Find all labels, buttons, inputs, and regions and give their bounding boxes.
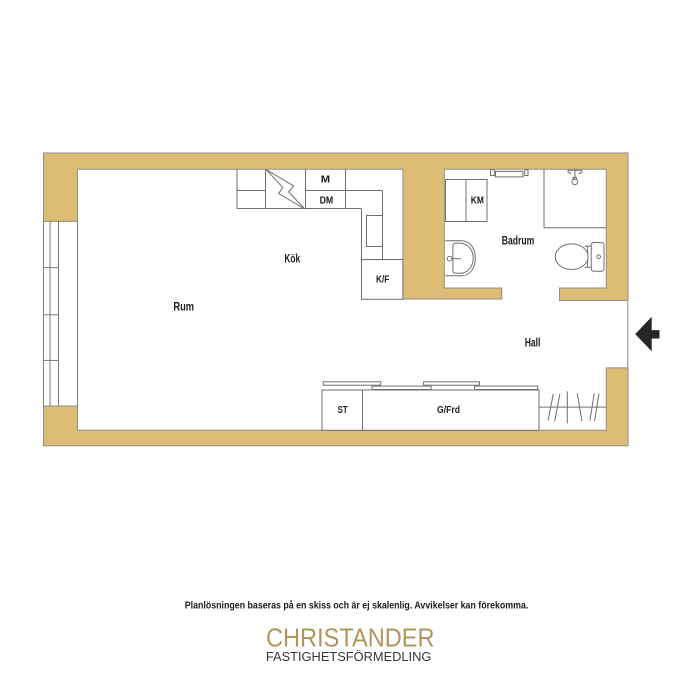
svg-text:Kök: Kök [284,252,300,266]
svg-text:K/F: K/F [376,273,390,285]
svg-text:Rum: Rum [173,299,194,313]
svg-text:Hall: Hall [525,336,541,350]
svg-text:M: M [321,174,331,186]
svg-text:G/Frd: G/Frd [437,404,460,416]
svg-text:Planlösningen baseras på en sk: Planlösningen baseras på en skiss och är… [185,601,529,612]
svg-text:DM: DM [320,194,334,206]
svg-text:FASTIGHETSFÖRMEDLING: FASTIGHETSFÖRMEDLING [266,649,432,664]
svg-text:ST: ST [338,404,348,416]
svg-text:Badrum: Badrum [502,233,534,247]
svg-text:CHRISTANDER: CHRISTANDER [266,624,435,652]
svg-text:KM: KM [471,195,484,207]
